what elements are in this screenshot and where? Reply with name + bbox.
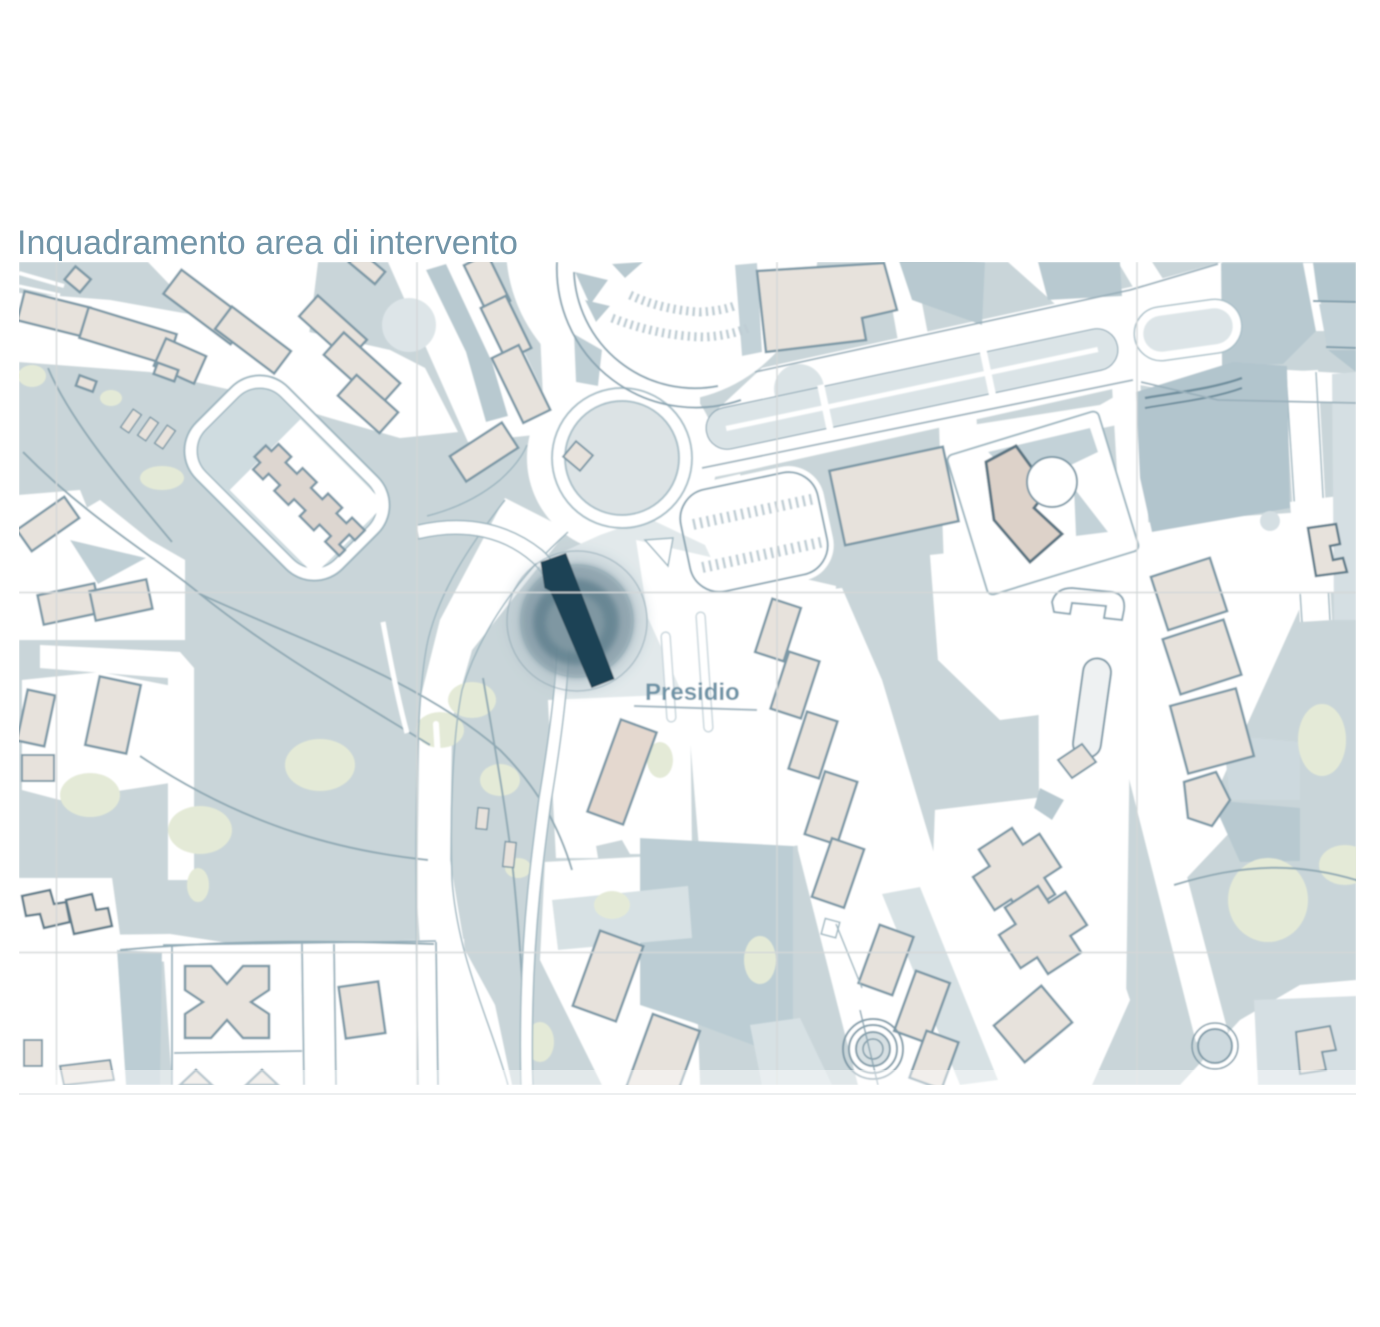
svg-text:Inquadramento area di interven: Inquadramento area di intervento [17,224,518,262]
svg-text:Presidio: Presidio [645,679,740,706]
